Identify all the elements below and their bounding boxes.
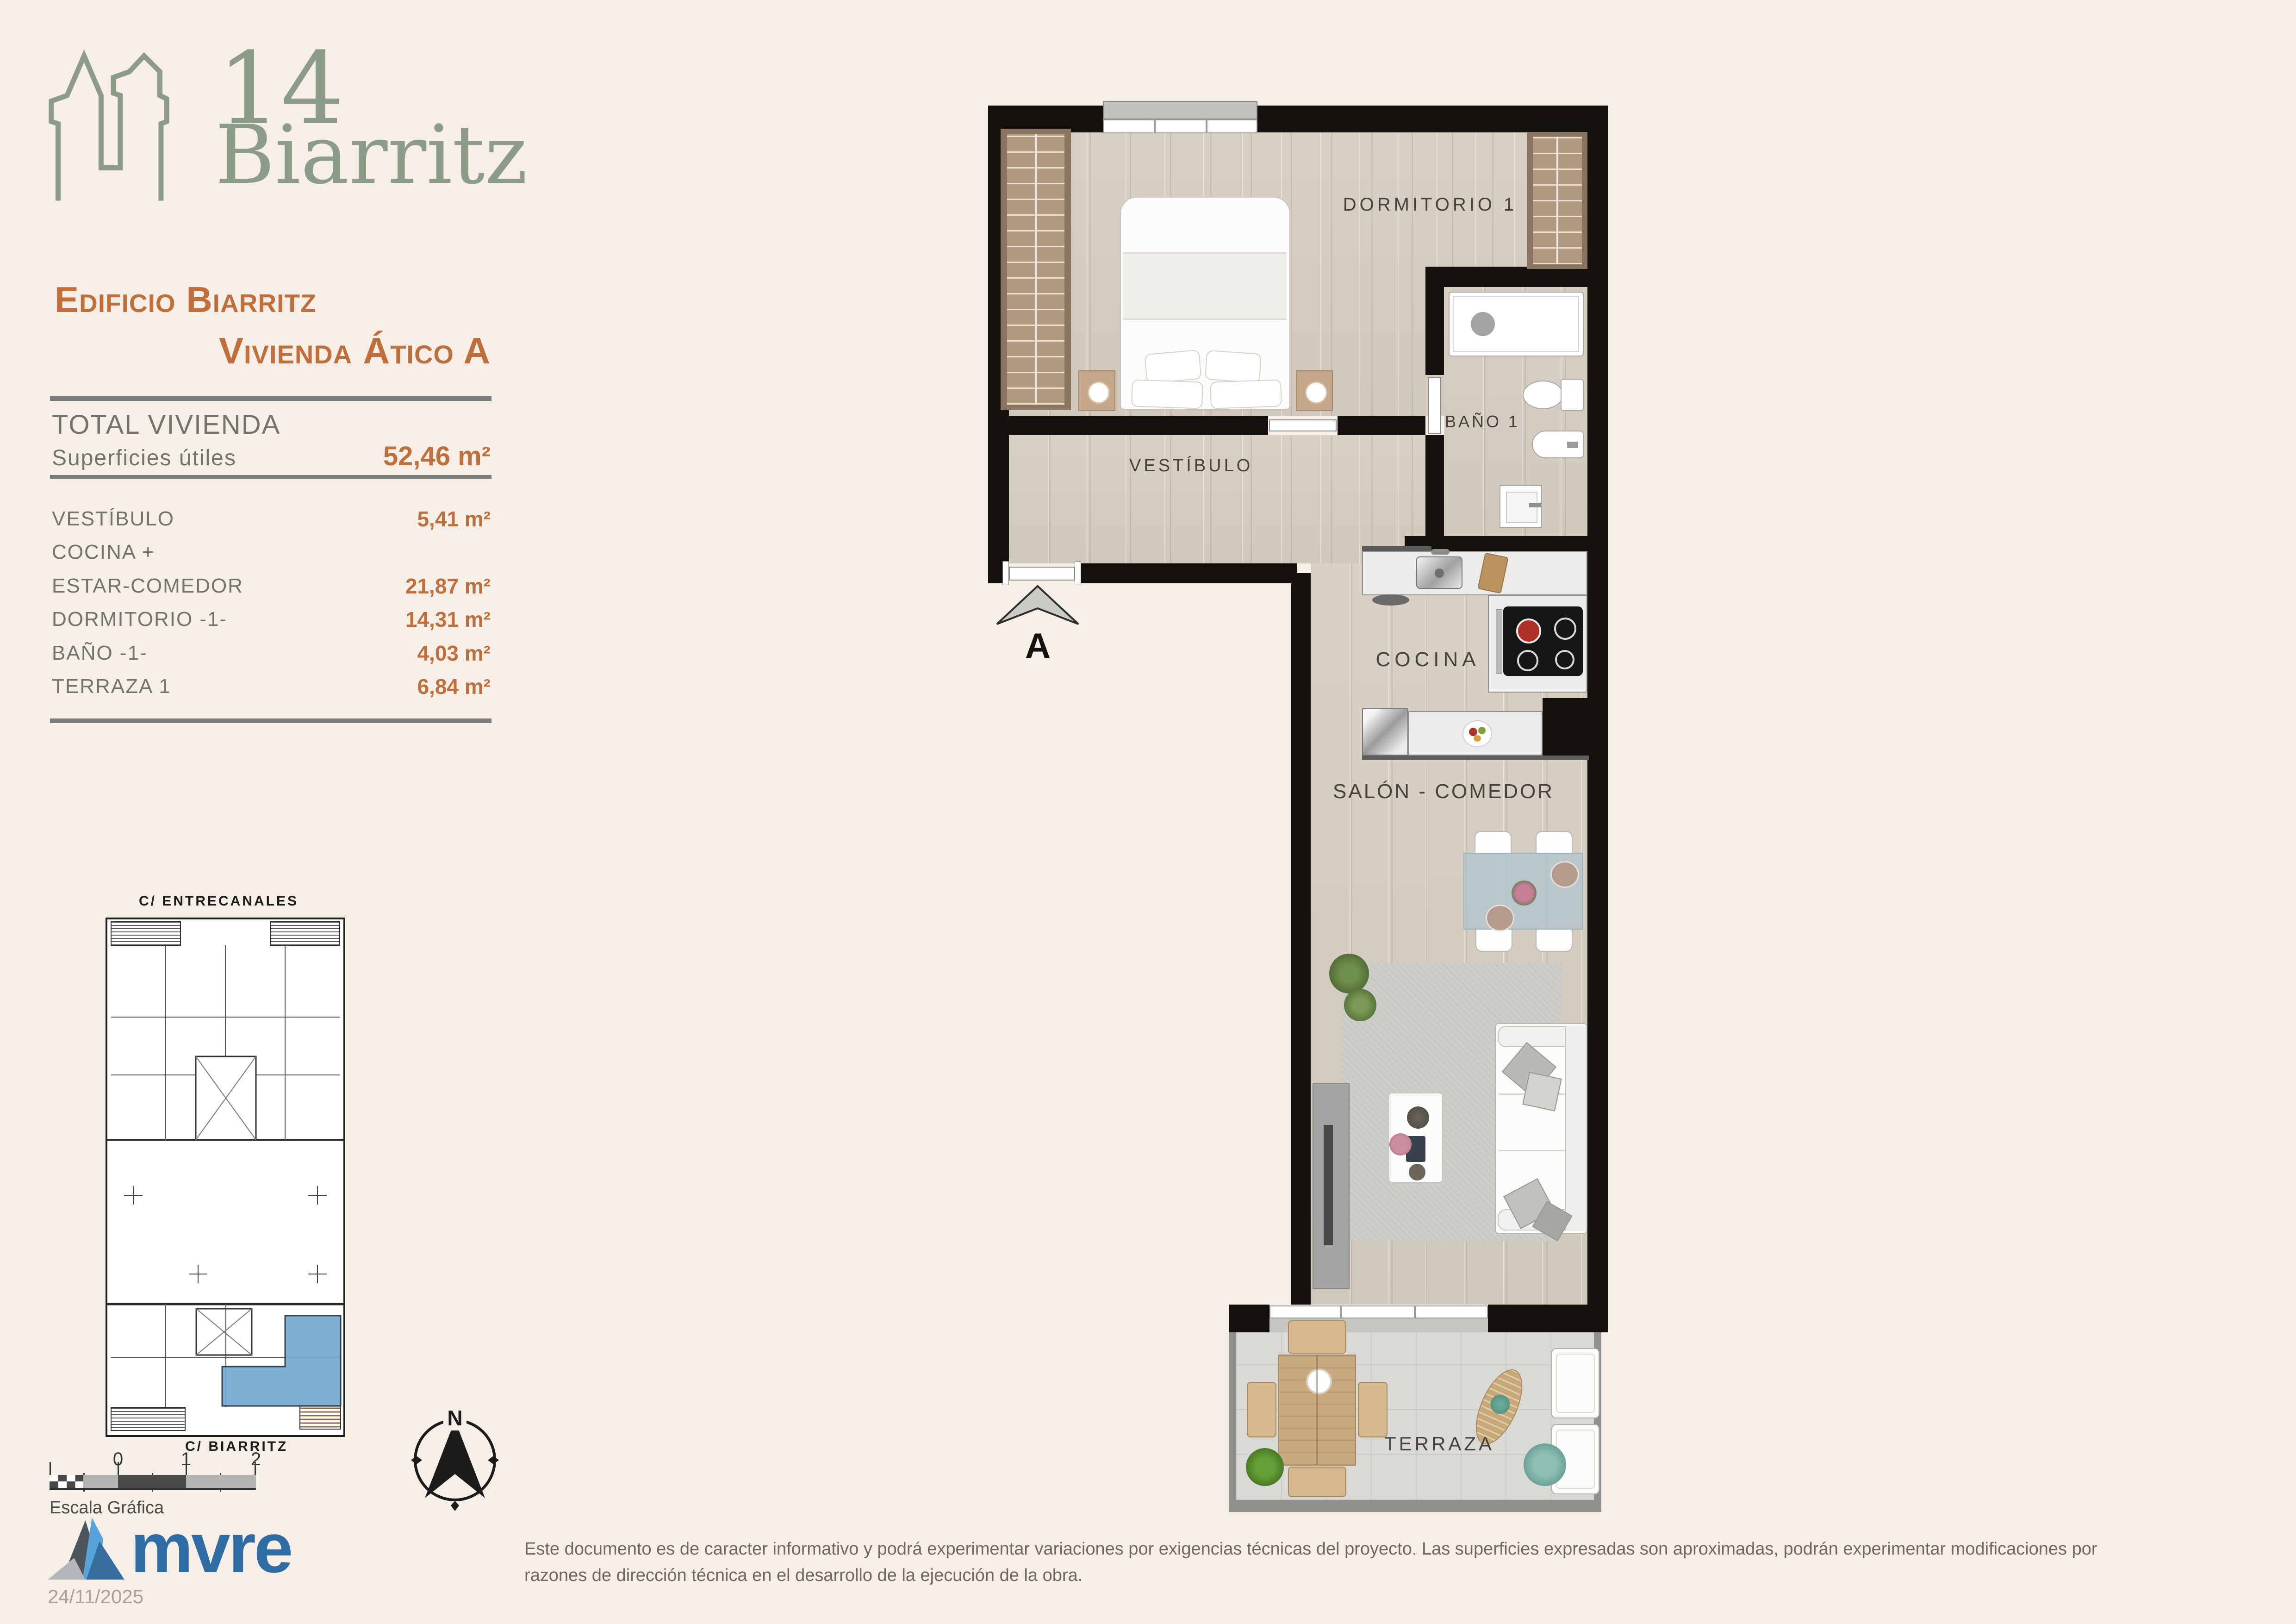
potted-plant	[1344, 989, 1376, 1021]
fruit	[1478, 727, 1486, 734]
wicker-plant	[1487, 1392, 1513, 1417]
window-mullion	[1414, 1306, 1416, 1318]
building-towers-icon	[44, 49, 192, 202]
wall-living-left	[1291, 573, 1311, 1305]
table-plank-line	[1316, 1355, 1318, 1465]
room-value-estar: 21,87 m²	[53, 574, 491, 599]
window-mullion	[1340, 1306, 1342, 1318]
vestibule-floor	[1009, 435, 1425, 563]
dining-chair	[1475, 831, 1512, 854]
tv-screen	[1324, 1125, 1333, 1245]
title-line2: Vivienda Ático A	[53, 330, 491, 372]
sofa-seat-line	[1499, 1150, 1565, 1151]
scale-seg-light	[186, 1475, 256, 1488]
room-value-dormitorio: 14,31 m²	[53, 607, 491, 632]
sink-drain	[1435, 568, 1444, 578]
terrace-rail-left	[1229, 1332, 1236, 1512]
logo-name: Biarritz	[215, 115, 528, 196]
decor-bowl-small	[1409, 1164, 1425, 1181]
bidet	[1532, 431, 1584, 458]
bed-pillow	[1131, 379, 1203, 409]
label-bedroom: DORMITORIO 1	[1338, 194, 1523, 215]
terrace-chair	[1358, 1382, 1388, 1437]
burner	[1554, 618, 1576, 640]
fruit-plate	[1462, 720, 1492, 747]
sofa-back	[1565, 1026, 1587, 1231]
wardrobe-rod	[1556, 137, 1558, 264]
sink-faucet	[1529, 503, 1541, 507]
compass: N	[411, 1413, 499, 1512]
wardrobe-rod	[1035, 134, 1037, 405]
scale-bar: 0 1 2	[50, 1449, 256, 1491]
lamp	[1088, 381, 1110, 404]
scale-band	[50, 1475, 256, 1490]
potted-plant	[1329, 954, 1369, 993]
siteplan-drawing	[106, 918, 345, 1437]
total-label: TOTAL VIVIENDA	[52, 409, 280, 440]
label-hall: VESTÍBULO	[1129, 456, 1250, 476]
terrace-slider-window	[1269, 1305, 1488, 1318]
place-setting	[1486, 905, 1514, 931]
bedroom-window	[1103, 119, 1257, 133]
terrace-plant-green	[1246, 1448, 1284, 1486]
wall-top-right	[1257, 106, 1608, 132]
bed-pillow	[1205, 350, 1262, 383]
terrace-chair	[1288, 1467, 1346, 1497]
scale-tick-2: 2	[251, 1449, 261, 1470]
bed	[1120, 197, 1290, 410]
entrance-jamb	[1002, 561, 1009, 585]
shower-tray	[1449, 292, 1584, 356]
entrance-letter: A	[1020, 626, 1055, 666]
bed-pillow	[1144, 350, 1201, 384]
coffee-table	[1388, 1093, 1443, 1183]
wall-terrace-corner-left	[1229, 1305, 1269, 1332]
bath-sink	[1500, 485, 1542, 528]
table-plate	[1306, 1368, 1332, 1394]
sink-basin	[1506, 492, 1537, 523]
decor-flower	[1389, 1133, 1412, 1156]
toilet-tank	[1561, 379, 1584, 411]
lamp	[1305, 381, 1327, 404]
sun-lounger	[1551, 1348, 1599, 1418]
entrance-door-leaf	[1009, 567, 1075, 581]
wardrobe-left	[1001, 129, 1071, 410]
scale-seg-light	[83, 1475, 118, 1488]
mvre-mountain-icon	[48, 1518, 125, 1580]
sofa-pillow	[1522, 1072, 1562, 1111]
label-bath: BAÑO 1	[1438, 412, 1526, 431]
floorplan-document: 14 Biarritz Edificio Biarritz Vivienda Á…	[0, 0, 2296, 1624]
terrace-chair	[1247, 1382, 1276, 1437]
disclaimer-line2: razones de dirección técnica en el desar…	[524, 1566, 1083, 1586]
dining-chair	[1536, 831, 1573, 854]
table-flowers	[1512, 881, 1537, 906]
kitchen-edge-bottom	[1362, 756, 1589, 760]
room-value-terraza: 6,84 m²	[53, 674, 491, 699]
wall-bedroom-vestibule-b	[1338, 416, 1425, 435]
nightstand	[1078, 370, 1115, 411]
entrance-arrow-icon	[995, 584, 1081, 627]
scale-seg-dark	[118, 1475, 186, 1488]
scale-seg-checker	[50, 1475, 83, 1488]
compass-north-label: N	[443, 1405, 467, 1430]
brand-logo: 14 Biarritz	[44, 45, 507, 203]
cooktop-knobs	[1496, 609, 1502, 674]
total-value: 52,46 m²	[53, 441, 491, 472]
document-date: 24/11/2025	[48, 1586, 143, 1608]
label-kitchen: COCINA	[1370, 648, 1486, 671]
window-mullion	[1154, 120, 1156, 132]
wall-vestibule-bottom	[1081, 563, 1297, 583]
burner-pot	[1516, 618, 1541, 643]
bed-duvet-fold	[1123, 252, 1287, 320]
terrace-chair	[1288, 1320, 1346, 1354]
bedroom-door-leaf	[1269, 419, 1337, 431]
dishwasher	[1362, 708, 1408, 756]
fruit	[1474, 735, 1481, 742]
bed-pillow	[1210, 379, 1282, 409]
divider-top	[50, 396, 492, 401]
dining-chair	[1475, 929, 1512, 952]
tv-bench	[1313, 1083, 1350, 1289]
burner	[1555, 650, 1574, 669]
room-name-cocina: COCINA +	[52, 541, 155, 564]
disclaimer-line1: Este documento es de caracter informativ…	[524, 1539, 2097, 1559]
bidet-faucet	[1567, 442, 1578, 448]
divider-mid	[50, 475, 492, 479]
siteplan-street-top: C/ ENTRECANALES	[139, 893, 299, 909]
lounger-cushion	[1556, 1354, 1595, 1413]
room-value-bano: 4,03 m²	[53, 641, 491, 666]
wall-bedroom-vestibule-a	[1009, 416, 1268, 435]
wall-bath-top	[1425, 267, 1608, 287]
dining-table	[1463, 853, 1583, 930]
wall-bath-left-b	[1425, 435, 1444, 536]
wall-living-bottom-right	[1488, 1305, 1608, 1332]
place-setting	[1550, 861, 1579, 888]
burner	[1517, 650, 1538, 671]
kitchen-column	[1543, 698, 1587, 756]
entrance-jamb	[1075, 561, 1081, 585]
label-terrace: TERRAZA	[1379, 1433, 1500, 1455]
divider-bottom	[50, 718, 492, 723]
kitchen-sink	[1416, 556, 1462, 589]
room-value-vestibulo: 5,41 m²	[53, 506, 491, 531]
nightstand	[1296, 370, 1333, 411]
wardrobe-right	[1527, 132, 1587, 269]
label-living: SALÓN - COMEDOR	[1333, 780, 1550, 803]
terrace-plant-teal	[1524, 1443, 1566, 1486]
mvre-wordmark: mvre	[131, 1513, 291, 1583]
wall-bath-left-a	[1425, 287, 1444, 375]
terrace-table	[1278, 1355, 1356, 1466]
dining-chair	[1536, 929, 1573, 952]
toilet-bowl	[1523, 381, 1563, 409]
decor-bowl	[1407, 1106, 1429, 1129]
shower-drain	[1471, 312, 1495, 336]
extractor	[1372, 594, 1409, 606]
kitchen-faucet	[1431, 549, 1450, 555]
bedroom-window-blind	[1103, 101, 1257, 119]
terrace-rail-bottom	[1229, 1500, 1601, 1512]
cooktop	[1503, 606, 1583, 676]
title-line1: Edificio Biarritz	[55, 279, 317, 321]
kitchen-counter-top	[1362, 551, 1587, 595]
window-mullion	[1206, 120, 1207, 132]
